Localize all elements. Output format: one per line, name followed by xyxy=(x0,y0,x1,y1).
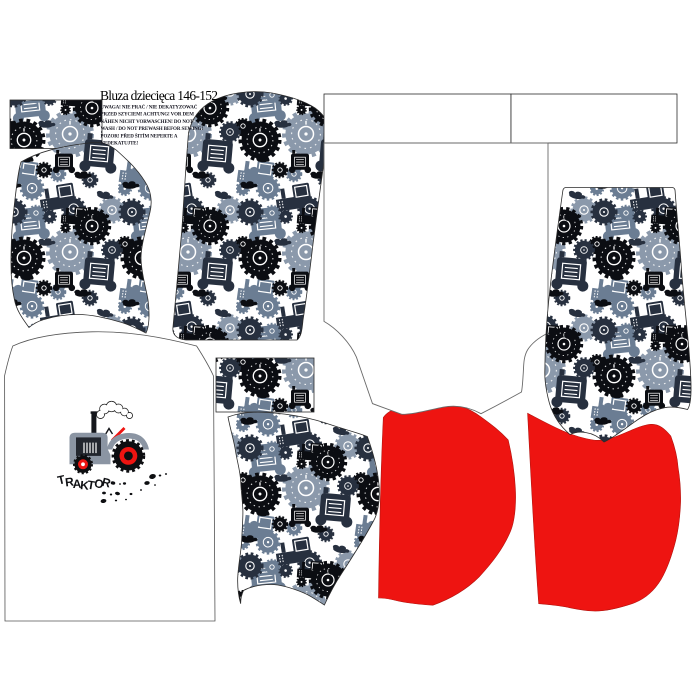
svg-text:WASH / DO NOT PREWASH BEFOR SE: WASH / DO NOT PREWASH BEFOR SEWING! xyxy=(101,127,204,132)
svg-text:NÄHEN NICHT VORWASCHEN! DO NOT: NÄHEN NICHT VORWASCHEN! DO NOT xyxy=(101,119,194,125)
svg-text:NEDEKATUJTE!: NEDEKATUJTE! xyxy=(101,142,139,147)
svg-text:Bluza dziecięca 146-152: Bluza dziecięca 146-152 xyxy=(100,88,217,103)
svg-text:POZOR! PŘED ŠITÍM NEPERTE A: POZOR! PŘED ŠITÍM NEPERTE A xyxy=(101,133,178,139)
svg-text:UWAGA! NIE PRAĆ / NIE DEKATYZO: UWAGA! NIE PRAĆ / NIE DEKATYZOWAĆ xyxy=(101,105,198,111)
svg-text:PRZED SZYCIEM! ACHTUNG! VOR DE: PRZED SZYCIEM! ACHTUNG! VOR DEM xyxy=(101,113,195,118)
